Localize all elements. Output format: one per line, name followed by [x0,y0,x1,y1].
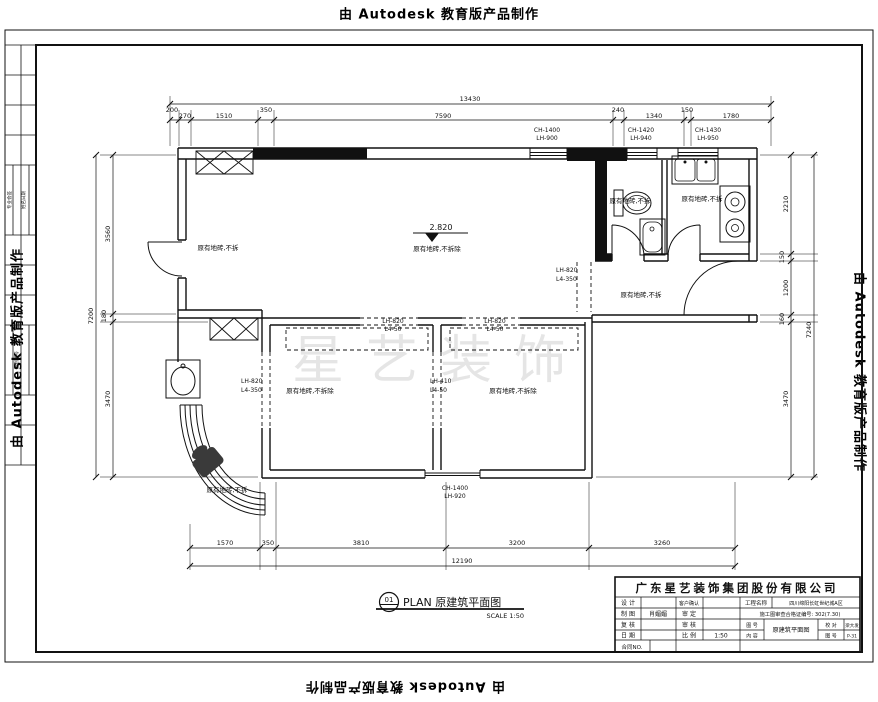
plan-walls [178,148,757,478]
win-top3-line2: LH-950 [697,135,719,142]
tb-contract-label: 合同NO. [622,643,643,651]
title-block: 广东星艺装饰集团股份有限公司 设 计 客户确认 制 图 肖媚媚 审 定 复 核 … [615,577,860,652]
dim-bottom-1: 350 [262,539,274,547]
win-top1-line1: CH-1400 [534,127,560,134]
label-living-left: 原有地砖,不拆 [197,243,239,252]
tb-client-confirm-label: 客户确认 [679,600,699,607]
dim-left-total: 7200 [87,308,95,325]
tb-project-value: 四川绵阳长虹世纪城A区 [789,600,842,607]
wall-fill-4 [595,254,612,261]
tb-draft-value: 肖媚媚 [649,610,667,618]
wall-fill-1 [253,148,367,159]
window-labels: CH-1400 LH-900 CH-1420 LH-940 CH-1430 LH… [241,127,721,500]
stove-fixture [720,186,750,242]
dim-right-total: 7240 [805,322,813,339]
washbasin-fixture [166,360,200,398]
dim-top-7: 150 [681,106,693,114]
dim-top-2: 1510 [216,112,233,120]
win-hall-line2: L4-350 [556,276,577,283]
label-bathroom: 原有地砖,不拆 [609,196,651,205]
win-mid-line2: L4-50 [430,387,447,394]
elevation-value: 2.820 [430,223,453,232]
tb-design-label: 设 计 [621,599,635,607]
plan-doors [148,225,738,315]
label-bedroom2: 原有地砖,不拆除 [489,386,537,395]
balcony-seat-fixture [186,439,225,478]
dim-right-4: 3470 [782,391,790,408]
dim-bottom-0: 1570 [217,539,234,547]
strip-col1-label: 专业会签 [6,191,13,209]
tb-scale-label: 比 例 [682,632,696,640]
strip-col2-label: 姓名日期 [20,191,27,209]
win-left-line1: LH-820 [241,378,263,385]
dim-left-2: 3470 [104,391,112,408]
dim-top-5: 240 [612,106,624,114]
win-bed2-line2: L4-50 [487,326,504,333]
dim-right-1: 150 [778,251,786,263]
label-kitchen: 原有地砖,不拆 [681,194,723,203]
tb-permit-text: 施工图审查合格证编号: 302(7.30) [760,610,841,618]
win-top2-line2: LH-940 [630,135,652,142]
win-top1-line2: LH-900 [536,135,558,142]
win-top2-line1: CH-1420 [628,127,654,134]
dim-bottom-total: 12190 [452,557,473,565]
dim-bottom-3: 3200 [509,539,526,547]
label-bedroom1: 原有地砖,不拆除 [286,386,334,395]
tb-check-label: 审 核 [682,621,696,629]
floor-plan-svg: 星艺装饰 专业会签 姓名日期 图别图号 [0,0,878,702]
dim-left-0: 3560 [104,226,112,243]
strip-col3-label: 图别图号 [13,351,20,369]
kitchen-sink-fixture [672,156,718,184]
elevation-marker: 2.820 [413,223,468,242]
dim-top-4: 7590 [435,112,452,120]
dim-right-2: 1200 [782,280,790,297]
win-bed1-line2: L4-50 [385,326,402,333]
tb-drawing-name: 原建筑平面图 [772,626,809,634]
win-hall-line1: LH-820 [556,267,578,274]
tb-no-label: 图 号 [825,634,837,640]
tb-sheet-label: 图 号 [746,623,758,629]
dim-bottom-4: 3260 [654,539,671,547]
dim-top-0: 200 [166,106,178,114]
bathtub-fixture [640,219,665,255]
dim-top-total: 13430 [460,95,481,103]
win-left-line2: L4-350 [241,387,262,394]
win-bottom-line2: LH-920 [444,493,466,500]
tb-date-label: 日 期 [621,632,635,640]
tb-no-value: P-31 [847,634,857,640]
win-bed2-line1: LH-820 [484,318,506,325]
dim-right-0: 2210 [782,196,790,213]
dim-top-1: 270 [179,112,191,120]
tb-company: 广东星艺装饰集团股份有限公司 [636,581,839,595]
tb-scale-value: 1:50 [714,633,728,640]
win-top3-line1: CH-1430 [695,127,721,134]
tb-content-label: 内 容 [746,633,758,640]
plan-title-scale: SCALE 1:50 [486,612,524,620]
plan-windows [425,148,718,478]
win-mid-line1: LH-410 [430,378,452,385]
dim-top-8: 1780 [723,112,740,120]
cad-drawing-page: 由 Autodesk 教育版产品制作 由 Autodesk 教育版产品制作 由 … [0,0,878,702]
tb-project-label: 工程名称 [745,599,768,607]
label-living-center: 原有地砖,不拆除 [413,244,461,253]
plan-title-number: 01 [385,596,394,604]
tb-proof-value: 梁大发 [845,622,859,629]
plan-title: 01 PLAN 原建筑平面图 SCALE 1:50 [376,593,524,621]
label-hallway: 原有地砖,不拆 [620,290,662,299]
dim-top-3: 350 [260,106,272,114]
tb-proof-label: 校 对 [825,622,837,629]
dim-left-1: 180 [100,310,108,322]
wall-fill-2 [567,148,627,161]
wall-fill-3 [595,161,607,254]
dim-right-3: 160 [778,313,786,325]
dim-bottom-2: 3810 [353,539,370,547]
dim-top-6: 1340 [646,112,663,120]
tb-draft-label: 制 图 [621,610,635,618]
win-bed1-line1: LH-820 [382,318,404,325]
tb-recheck-label: 复 核 [621,621,635,629]
label-balcony: 原有地砖,不拆 [206,485,248,494]
tb-approve-label: 审 定 [682,610,696,618]
plan-title-label: PLAN 原建筑平面图 [403,595,501,609]
